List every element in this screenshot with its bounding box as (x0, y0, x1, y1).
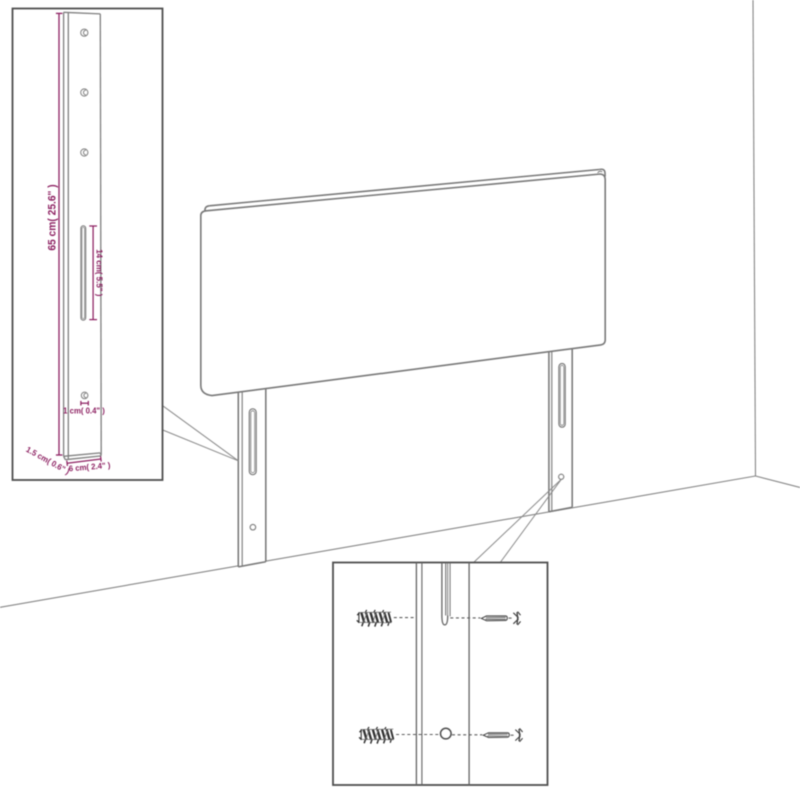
svg-text:65 cm( 25.6" ): 65 cm( 25.6" ) (46, 184, 58, 250)
svg-text:14 cm( 5.5" ): 14 cm( 5.5" ) (94, 249, 103, 296)
svg-text:1 cm( 0.4" ): 1 cm( 0.4" ) (63, 406, 105, 415)
